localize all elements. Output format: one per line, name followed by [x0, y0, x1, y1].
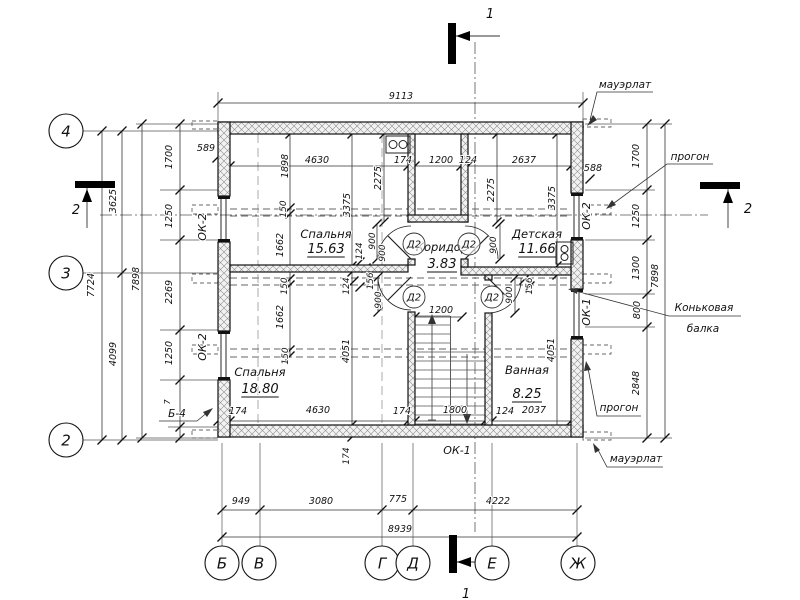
- floor-plan-canvas: 9113589588463017412001242637120017446301…: [0, 0, 800, 600]
- dimension-label: 1700: [631, 144, 642, 168]
- dimension-label: 7: [163, 399, 172, 405]
- wall-segment: [218, 425, 583, 437]
- dimension-label: 900: [368, 232, 378, 249]
- axis-label: Д: [406, 555, 419, 573]
- axis-label: Е: [487, 555, 497, 573]
- dimension-label: 124: [355, 242, 365, 259]
- dimension-label: 3375: [342, 193, 353, 217]
- dimension-label: 4051: [341, 339, 352, 363]
- dimension-tick: [356, 283, 365, 292]
- section-2-right-bar: [700, 182, 740, 189]
- section-1-top-bar: [448, 23, 456, 64]
- section-label: 2: [72, 203, 80, 218]
- dimension-label: 150: [279, 200, 289, 217]
- dimension-label: 900: [489, 236, 499, 253]
- room-area: 11.66: [518, 242, 555, 257]
- dimension-label: 1250: [164, 341, 175, 365]
- dimension-label: 588: [584, 163, 602, 174]
- dimension-label: 3080: [309, 496, 333, 507]
- section-label: 2: [744, 202, 752, 217]
- dimension-label: 1662: [275, 305, 286, 329]
- room-name: Спальня: [300, 227, 351, 241]
- dimension-label: 174: [394, 155, 412, 166]
- dimension-label: 174: [393, 406, 411, 417]
- dimension-label: 4099: [108, 342, 119, 366]
- window-tag: ОК-2: [580, 202, 593, 229]
- callout-label: прогон: [671, 151, 710, 163]
- callout-label: Коньковая: [675, 302, 734, 314]
- window-tag: ОК-1: [580, 298, 593, 325]
- dimension-label: 174: [229, 406, 247, 417]
- dimension-label: 150: [281, 347, 291, 364]
- callout-label: мауэрлат: [610, 453, 663, 465]
- window-tag: ОК-2: [196, 333, 209, 360]
- axis-label: 4: [61, 123, 71, 141]
- dimension-label: 775: [389, 494, 407, 505]
- dimension-label: 1200: [429, 155, 453, 166]
- wall-segment: [408, 134, 415, 222]
- window-tag: ОК-2: [196, 213, 209, 240]
- wall-segment: [218, 242, 230, 331]
- wall-segment: [461, 259, 468, 267]
- section-label: 1: [462, 587, 470, 600]
- dimension-label: 1662: [275, 233, 286, 257]
- dimension-label: 4222: [486, 496, 510, 507]
- dimension-label: 4630: [305, 155, 329, 166]
- dimension-label: 150: [280, 277, 290, 294]
- dimension-label: 1250: [631, 204, 642, 228]
- dimension-label: 2848: [631, 371, 642, 395]
- dimension-label: 124: [496, 406, 514, 417]
- section-2-left-bar: [75, 181, 115, 188]
- dimension-label: 1250: [164, 204, 175, 228]
- dimension-label: 3375: [547, 186, 558, 210]
- dimension-label: 174: [342, 447, 352, 464]
- door-tag-label: Д2: [484, 293, 499, 304]
- wall-segment: [408, 215, 468, 222]
- wall-segment: [230, 265, 408, 272]
- axis-label: В: [254, 555, 264, 573]
- dimension-label: 9113: [389, 91, 413, 102]
- dimension-label: 7898: [131, 267, 142, 291]
- dimension-label: 800: [632, 301, 643, 319]
- dimension-label: 949: [232, 496, 250, 507]
- dimension-label: 1300: [631, 256, 642, 280]
- section-1-bottom-bar: [449, 535, 457, 573]
- wall-segment: [461, 267, 571, 275]
- dimension-label: 156: [525, 277, 535, 294]
- wall-segment: [571, 122, 583, 193]
- dimension-label: 156: [366, 272, 376, 289]
- dimension-label: 2275: [486, 178, 497, 202]
- axis-label: 2: [61, 432, 71, 450]
- room-area: 3.83: [428, 257, 457, 272]
- wall-segment: [485, 313, 492, 425]
- dimension-label: 4051: [546, 338, 557, 362]
- dimension-label: 2269: [164, 280, 175, 304]
- dimension-label: 900: [378, 244, 388, 261]
- room-name: Детская: [511, 227, 562, 241]
- room-name: Спальня: [234, 365, 285, 379]
- door-tag-label: Д2: [461, 240, 476, 251]
- wall-segment: [571, 339, 583, 437]
- dimension-label: 2275: [373, 166, 384, 190]
- wall-segment: [218, 122, 230, 196]
- dimension-label: 8939: [388, 524, 412, 535]
- wall-segment: [408, 259, 415, 265]
- dimension-label: 4630: [306, 405, 330, 416]
- dimension-label: 1200: [429, 305, 453, 316]
- callout-label: балка: [687, 323, 719, 335]
- callout-label: мауэрлат: [599, 79, 652, 91]
- dimension-tick: [586, 175, 595, 184]
- axis-label: Ж: [569, 555, 587, 573]
- dimension-label: 1800: [443, 405, 467, 416]
- window-tag: ОК-1: [443, 444, 470, 457]
- door-tag-label: Д2: [406, 240, 421, 251]
- dimension-label: 589: [197, 143, 215, 154]
- door-tag-label: Д2: [406, 293, 421, 304]
- dimension-label: 900: [505, 286, 515, 303]
- callout-label: прогон: [600, 402, 639, 414]
- callout-label: Б-4: [168, 408, 186, 420]
- room-area: 18.80: [241, 382, 278, 397]
- wall-segment: [461, 134, 468, 222]
- dimension-label: 124: [342, 277, 352, 294]
- dimension-label: 1898: [280, 154, 291, 178]
- room-area: 8.25: [513, 387, 542, 402]
- floor-plan-drawing: 9113589588463017412001242637120017446301…: [0, 0, 800, 600]
- dimension-label: 900: [374, 291, 384, 308]
- section-label: 1: [486, 7, 494, 22]
- dimension-label: 1700: [164, 145, 175, 169]
- dimension-label: 2637: [512, 155, 536, 166]
- axis-label: 3: [61, 265, 71, 283]
- sink-fixture: [386, 136, 410, 153]
- dimension-label: 124: [459, 155, 477, 166]
- room-area: 15.63: [307, 242, 344, 257]
- dimension-label: 3625: [108, 189, 119, 213]
- dimension-label: 2037: [522, 405, 546, 416]
- axis-label: Б: [217, 555, 227, 573]
- wall-segment: [218, 122, 583, 134]
- dimension-label: 7724: [86, 273, 97, 297]
- room-name: Ванная: [505, 363, 549, 377]
- dimension-label: 7898: [650, 264, 661, 288]
